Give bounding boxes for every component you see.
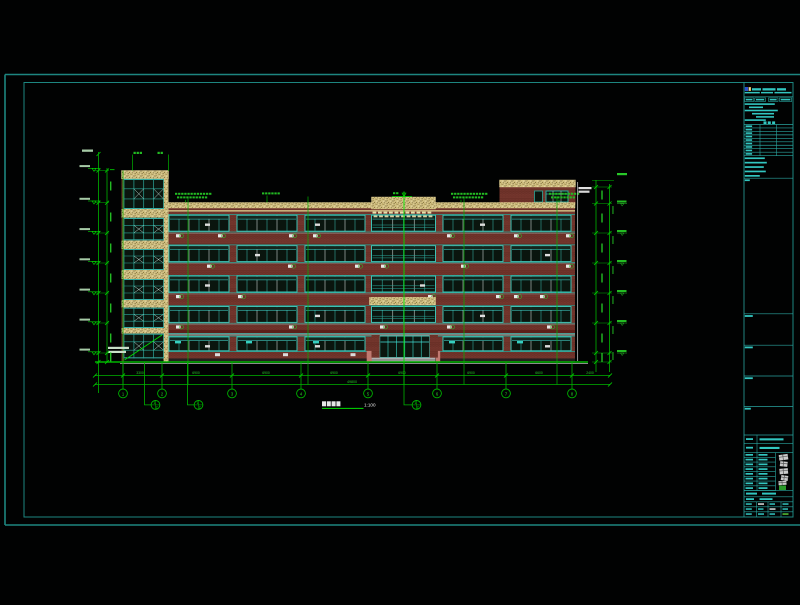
svg-text:1: 1 — [197, 401, 199, 405]
svg-text:2400: 2400 — [586, 371, 594, 375]
svg-text:6900: 6900 — [330, 371, 338, 375]
svg-text:6600: 6600 — [535, 371, 543, 375]
svg-text:1: 1 — [415, 401, 417, 405]
svg-text:1:100: 1:100 — [364, 402, 376, 407]
svg-text:6900: 6900 — [398, 371, 406, 375]
svg-text:49800: 49800 — [347, 380, 357, 384]
svg-text:6900: 6900 — [192, 371, 200, 375]
svg-text:3300: 3300 — [136, 371, 144, 375]
svg-text:2: 2 — [199, 406, 201, 410]
svg-text:2: 2 — [156, 406, 158, 410]
svg-text:6900: 6900 — [262, 371, 270, 375]
svg-text:2: 2 — [417, 406, 419, 410]
svg-text:6900: 6900 — [467, 371, 475, 375]
svg-text:1: 1 — [154, 401, 156, 405]
